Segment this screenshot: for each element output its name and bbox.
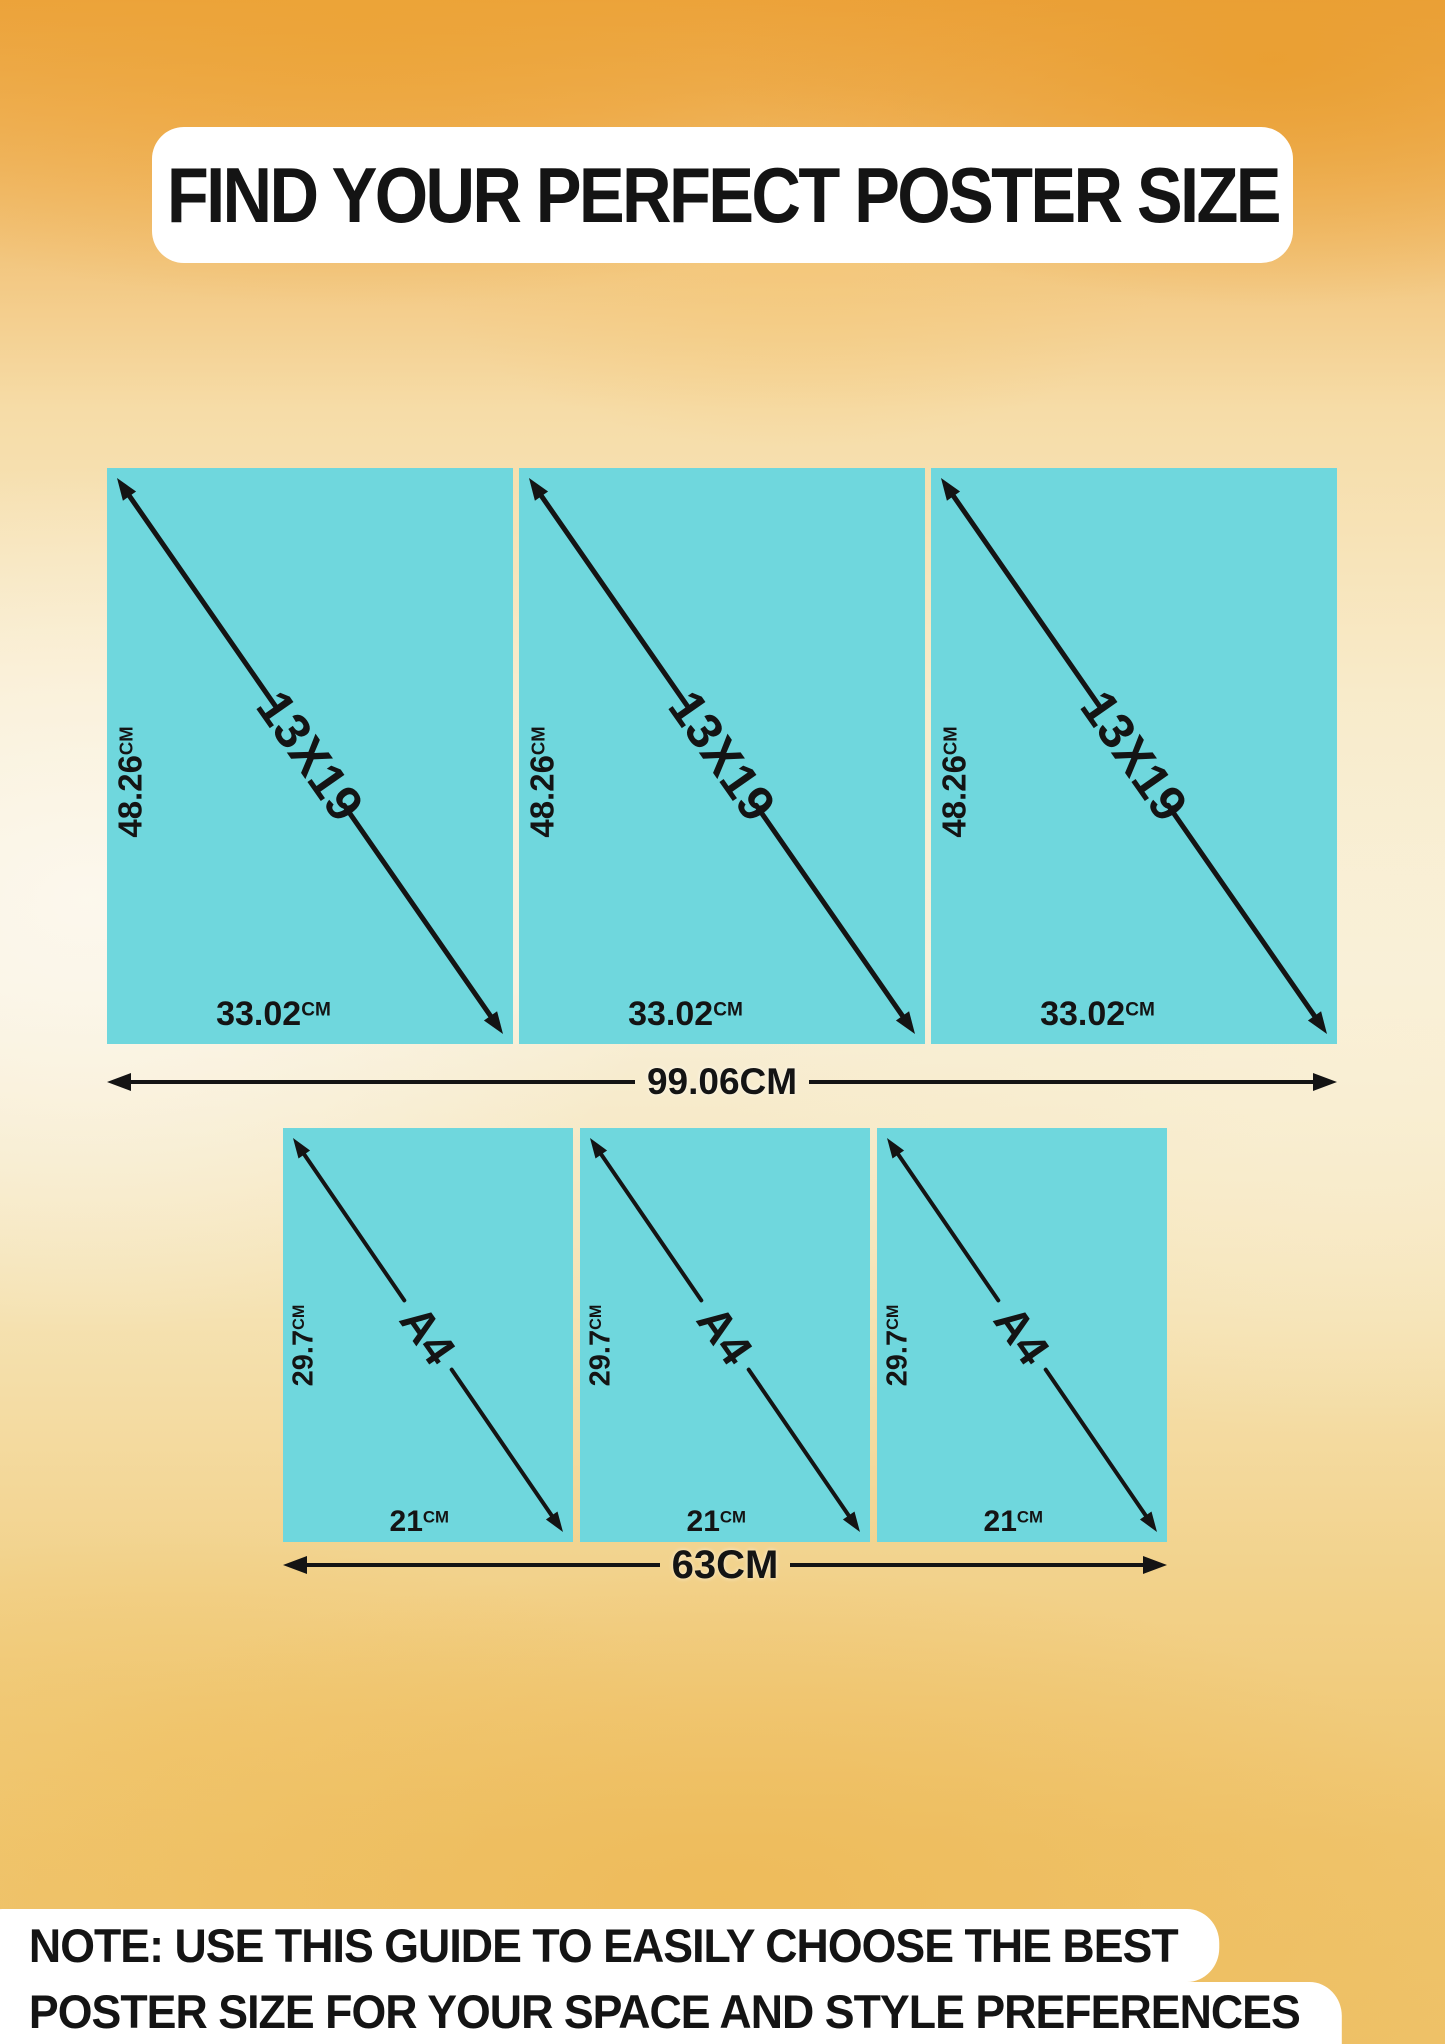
width-value: 33.02 [628,995,713,1033]
total-width-line-13x19: 99.06CM [107,1062,1337,1102]
height-value: 48.26 [936,755,973,838]
height-label-text: 29.7CM [288,1304,321,1386]
height-unit: CM [528,726,549,755]
width-label: 21CM [687,1505,746,1539]
width-unit: CM [1125,999,1155,1020]
total-width-value: 99.06CM [635,1061,809,1103]
height-unit: CM [587,1304,605,1329]
height-label-text: 29.7CM [585,1304,618,1386]
height-label: 29.7CM [877,1128,919,1542]
poster-size-guide: FIND YOUR PERFECT POSTER SIZE 48.26CM 13… [0,0,1445,2044]
arrowhead-left-icon [107,1073,131,1091]
height-label: 29.7CM [580,1128,622,1542]
height-value: 29.7 [882,1329,914,1385]
width-unit: CM [423,1508,449,1527]
width-label: 33.02CM [1040,995,1155,1034]
width-unit: CM [301,999,331,1020]
arrowhead-left-icon [283,1556,307,1574]
poster-a4-3: 29.7CM A4 21CM [877,1128,1167,1542]
line-segment [809,1080,1313,1084]
total-width-value: 63CM [660,1543,791,1588]
poster-a4-2: 29.7CM A4 21CM [580,1128,870,1542]
height-unit: CM [940,726,961,755]
width-value: 21 [984,1505,1017,1538]
note-line-1: NOTE: USE THIS GUIDE TO EASILY CHOOSE TH… [0,1909,1220,1982]
height-label-text: 48.26CM [524,726,562,837]
height-label: 48.26CM [107,468,155,1044]
arrowhead-right-icon [1143,1556,1167,1574]
poster-a4-1: 29.7CM A4 21CM [283,1128,573,1542]
height-value: 48.26 [112,755,149,838]
width-unit: CM [713,999,743,1020]
poster-13x19-1: 48.26CM 13X19 33.02CM [107,468,513,1044]
width-value: 33.02 [1040,995,1125,1033]
line-segment [307,1563,660,1567]
note-line-2: POSTER SIZE FOR YOUR SPACE AND STYLE PRE… [0,1982,1342,2044]
width-value: 33.02 [216,995,301,1033]
width-value: 21 [687,1505,720,1538]
height-unit: CM [290,1304,308,1329]
note-panel: NOTE: USE THIS GUIDE TO EASILY CHOOSE TH… [0,1909,1414,2044]
width-value: 21 [390,1505,423,1538]
width-unit: CM [1017,1508,1043,1527]
width-label: 33.02CM [628,995,743,1034]
page-title: FIND YOUR PERFECT POSTER SIZE [166,150,1278,241]
poster-13x19-2: 48.26CM 13X19 33.02CM [519,468,925,1044]
height-label-text: 29.7CM [882,1304,915,1386]
width-label: 21CM [390,1505,449,1539]
width-label: 21CM [984,1505,1043,1539]
poster-13x19-3: 48.26CM 13X19 33.02CM [931,468,1337,1044]
height-label: 48.26CM [519,468,567,1044]
line-segment [790,1563,1143,1567]
height-unit: CM [884,1304,902,1329]
height-label: 29.7CM [283,1128,325,1542]
height-label-text: 48.26CM [936,726,974,837]
height-unit: CM [116,726,137,755]
line-segment [131,1080,635,1084]
total-width-line-a4: 63CM [283,1545,1167,1585]
height-label-text: 48.26CM [112,726,150,837]
width-unit: CM [720,1508,746,1527]
arrowhead-right-icon [1313,1073,1337,1091]
width-label: 33.02CM [216,995,331,1034]
height-value: 29.7 [288,1329,320,1385]
height-value: 29.7 [585,1329,617,1385]
height-value: 48.26 [524,755,561,838]
height-label: 48.26CM [931,468,979,1044]
title-panel: FIND YOUR PERFECT POSTER SIZE [152,127,1293,263]
